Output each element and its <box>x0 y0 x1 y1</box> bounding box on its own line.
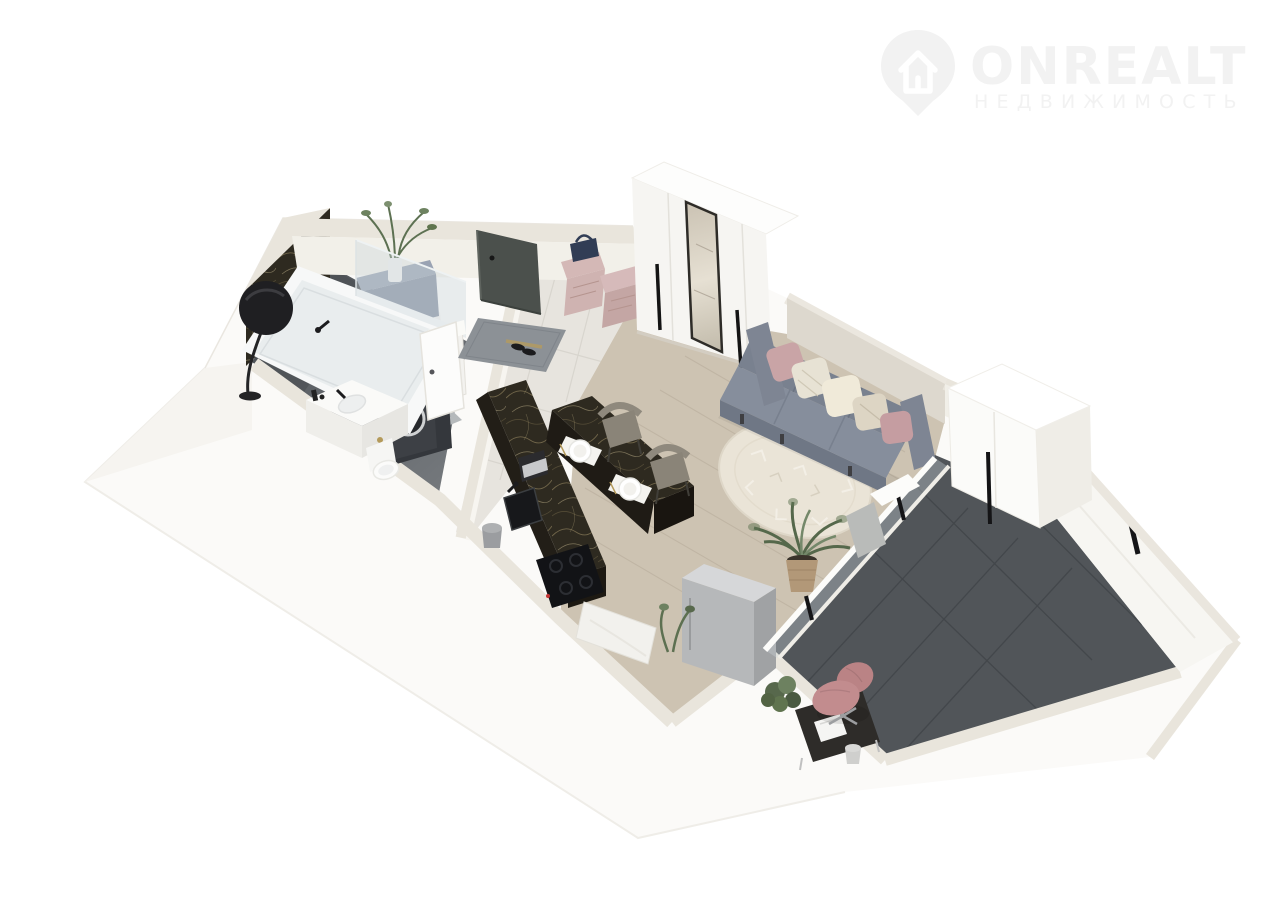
wardrobe-mirror <box>686 202 722 352</box>
small-bin <box>482 523 502 548</box>
floor-plan-render: ONREALT НЕДВИЖИМОСТЬ <box>0 0 1280 910</box>
waste-bin <box>845 744 861 764</box>
door-peephole <box>490 256 495 261</box>
brand-name: ONREALT <box>970 37 1248 97</box>
plant-basket <box>786 560 818 592</box>
brand-tagline: НЕДВИЖИМОСТЬ <box>974 91 1245 113</box>
wardrobe-handle <box>988 452 990 524</box>
door-handle <box>430 370 435 375</box>
bathroom-door <box>420 322 464 420</box>
